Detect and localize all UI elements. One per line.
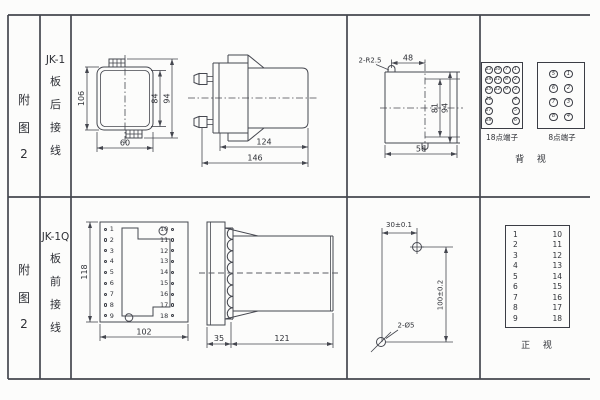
dim-side-body: 121	[274, 334, 289, 343]
terminal-circle: 7	[549, 98, 558, 107]
terminal-number: 10	[552, 231, 562, 239]
terminal-number: 17	[160, 302, 168, 309]
terminal-circle: 16	[485, 97, 493, 105]
terminal-number: 18	[552, 315, 562, 323]
terminal-circle: 2	[564, 84, 573, 93]
terminal-block-18pt: 13 10 7 1 14 11 8 2 15 12 9 3 16 4 17 5 …	[481, 62, 523, 129]
terminal-circle: 15	[485, 86, 493, 94]
figure-char: 图	[18, 289, 30, 306]
figure-char: 附	[18, 91, 30, 108]
terminal-circle: 8	[503, 76, 511, 84]
terminal-circle: 2	[512, 76, 520, 84]
terminal-dot	[104, 249, 107, 252]
wiring-char: 前	[50, 273, 61, 289]
row1-figure-label: 附 图 2	[8, 80, 40, 172]
dim-cutout-inner: 81	[431, 103, 440, 113]
terminal-number: 18	[160, 313, 168, 320]
terminal-number: 6	[513, 283, 518, 291]
terminal-circle: 4	[564, 113, 573, 122]
dim-drill-width: 30±0.1	[386, 221, 412, 229]
terminal-circle: 1	[564, 70, 573, 79]
row1-model-label: JK-1 板 后 接 线	[40, 52, 71, 160]
terminal-dot	[104, 260, 107, 263]
terminal-number: 14	[552, 273, 562, 281]
label-18pt-terminal: 18点端子	[477, 132, 527, 143]
wiring-char: 接	[50, 119, 61, 135]
dim-side-total: 146	[247, 154, 262, 163]
terminal-circle: 12	[494, 86, 502, 94]
model-name: JK-1Q	[42, 231, 70, 243]
dim-front-height: 118	[80, 264, 89, 279]
terminal-number: 17	[552, 304, 562, 312]
terminal-dot	[171, 238, 174, 241]
dim-cutout-top: 48	[403, 54, 413, 63]
front-view-left-terminals: 1 2 3 4 5 6 7 8 9	[104, 226, 114, 319]
dim-side-body: 124	[256, 138, 271, 147]
terminal-circle: 3	[512, 86, 520, 94]
figure-char: 附	[18, 261, 30, 278]
jk1q-side-view-drawing: 35 121	[199, 222, 341, 348]
label-back-view: 背 视	[500, 152, 566, 165]
terminal-number: 2	[110, 237, 114, 244]
figure-char: 2	[20, 317, 28, 331]
dim-side-front: 35	[214, 334, 224, 343]
terminal-circle: 11	[494, 76, 502, 84]
dim-drill-height: 100±0.2	[437, 280, 445, 310]
terminal-number: 11	[552, 241, 562, 249]
jk1-panel-cutout-drawing: 48 2-R2.5 81 94 56	[359, 54, 463, 159]
jk1-rear-view-drawing: 106 84 94 60	[77, 55, 178, 152]
terminal-number: 9	[513, 315, 518, 323]
terminal-number: 12	[160, 248, 168, 255]
terminal-dot	[171, 314, 174, 317]
terminal-circle: 4	[512, 97, 520, 105]
terminal-circle: 8	[549, 113, 558, 122]
dim-cutout-bottom: 56	[416, 145, 426, 154]
terminal-list-left-column: 1 2 3 4 5 6 7 8 9	[513, 231, 518, 322]
terminal-number: 5	[513, 273, 518, 281]
terminal-dot	[171, 260, 174, 263]
terminal-dot	[104, 293, 107, 296]
front-view-right-terminals: 10 11 12 13 14 15 16 17 18	[148, 226, 174, 319]
terminal-dot	[104, 271, 107, 274]
row2-figure-label: 附 图 2	[8, 256, 40, 336]
terminal-dot	[104, 238, 107, 241]
terminal-circle: 18	[485, 117, 493, 125]
model-name: JK-1	[46, 54, 65, 66]
terminal-dot	[171, 249, 174, 252]
terminal-number: 3	[513, 252, 518, 260]
terminal-number: 4	[513, 262, 518, 270]
figure-char: 2	[20, 147, 28, 161]
terminal-dot	[104, 303, 107, 306]
terminal-dot	[104, 314, 107, 317]
terminal-circle: 9	[503, 86, 511, 94]
terminal-number: 6	[110, 280, 114, 287]
terminal-circle: 17	[485, 107, 493, 115]
label-front-view: 正 视	[505, 338, 573, 351]
terminal-dot	[171, 293, 174, 296]
wiring-char: 板	[50, 73, 61, 89]
wiring-char: 接	[50, 296, 61, 312]
terminal-dot	[171, 228, 174, 231]
terminal-dot	[104, 282, 107, 285]
dim-rear-outer: 94	[163, 93, 172, 103]
terminal-circle: 10	[494, 66, 502, 74]
terminal-list-right-column: 10 11 12 13 14 15 16 17 18	[552, 231, 562, 322]
terminal-number: 10	[160, 226, 168, 233]
jk1q-drill-plan-drawing: 30±0.1 100±0.2 2-Ø5	[371, 221, 453, 352]
dim-rear-height: 106	[77, 91, 86, 106]
figure-char: 图	[18, 119, 30, 136]
terminal-number: 1	[513, 231, 518, 239]
terminal-number: 3	[110, 248, 114, 255]
terminal-circle: 6	[549, 84, 558, 93]
dim-cutout-radius: 2-R2.5	[359, 57, 382, 65]
terminal-dot	[171, 303, 174, 306]
jk1-side-view-drawing: 124 146	[188, 55, 318, 167]
terminal-number: 7	[110, 291, 114, 298]
terminal-number: 12	[552, 252, 562, 260]
terminal-number: 8	[110, 302, 114, 309]
wiring-char: 线	[50, 319, 61, 335]
terminal-number: 7	[513, 294, 518, 302]
terminal-number: 15	[160, 280, 168, 287]
row2-model-label: JK-1Q 板 前 接 线	[40, 227, 71, 339]
terminal-number: 13	[552, 262, 562, 270]
terminal-number: 8	[513, 304, 518, 312]
terminal-circle: 5	[549, 70, 558, 79]
terminal-number: 16	[160, 291, 168, 298]
terminal-circle: 5	[512, 107, 520, 115]
label-8pt-terminal: 8点端子	[539, 132, 585, 143]
terminal-dot	[171, 282, 174, 285]
terminal-number: 4	[110, 258, 114, 265]
terminal-number: 14	[160, 269, 168, 276]
terminal-number: 1	[110, 226, 114, 233]
terminal-number: 9	[110, 313, 114, 320]
terminal-number: 16	[552, 294, 562, 302]
terminal-circle: 1	[512, 66, 520, 74]
dim-rear-width: 60	[120, 139, 130, 148]
dim-front-width: 102	[136, 328, 151, 337]
terminal-circle: 7	[503, 66, 511, 74]
wiring-char: 线	[50, 142, 61, 158]
terminal-number: 2	[513, 241, 518, 249]
terminal-block-8pt: 5 1 6 2 7 3 8 4	[537, 62, 585, 129]
terminal-list-box: 1 2 3 4 5 6 7 8 9 10 11 12 13 14 15 16 1…	[505, 225, 570, 328]
terminal-circle: 6	[512, 117, 520, 125]
terminal-circle: 14	[485, 76, 493, 84]
terminal-number: 11	[160, 237, 168, 244]
terminal-number: 15	[552, 283, 562, 291]
dim-rear-inner: 84	[151, 93, 160, 103]
wiring-char: 板	[50, 250, 61, 266]
terminal-circle: 3	[564, 98, 573, 107]
terminal-number: 13	[160, 258, 168, 265]
dim-cutout-outer: 94	[441, 103, 450, 113]
terminal-circle: 13	[485, 66, 493, 74]
terminal-dot	[171, 271, 174, 274]
dim-drill-holes: 2-Ø5	[398, 322, 415, 330]
terminal-number: 5	[110, 269, 114, 276]
terminal-dot	[104, 228, 107, 231]
wiring-char: 后	[50, 96, 61, 112]
